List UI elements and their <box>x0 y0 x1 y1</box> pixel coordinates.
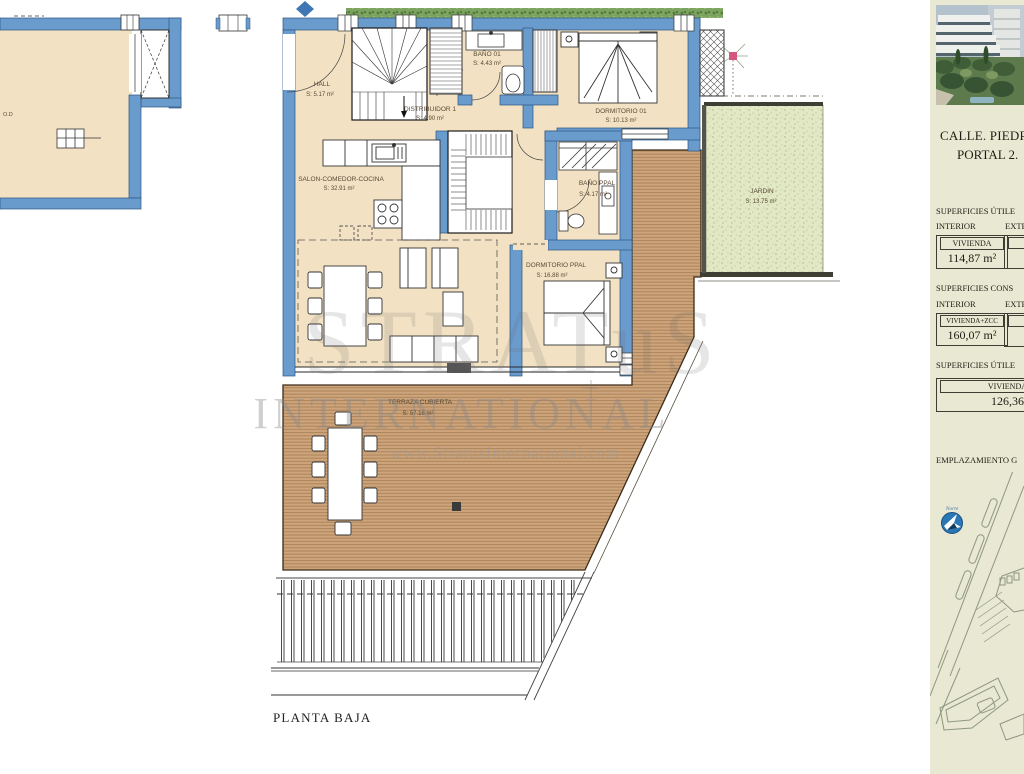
lower-stair <box>448 131 512 233</box>
railing <box>271 572 594 700</box>
jardin-area: S: 13.75 m² <box>745 199 776 205</box>
table2-label: VIVIENDA+ZCC <box>940 315 1004 327</box>
dormppal-label: DORMITORIO PPAL <box>526 262 586 269</box>
table2-exterior-fragment <box>1004 313 1024 347</box>
north-compass-icon: Norte <box>942 506 963 534</box>
distribuidor-area: S: 4.90 m² <box>416 116 444 122</box>
address-line1: CALLE. PIEDR <box>940 128 1024 144</box>
table1-exterior-fragment <box>1004 235 1024 269</box>
adjacent-unit-label: O.D <box>3 112 13 118</box>
floorplan-drawing: O.D <box>0 0 930 774</box>
superficies-utiles-table: VIVIENDA 114,87 m² <box>936 235 1008 269</box>
drain-icon <box>452 502 461 511</box>
col-exterior: EXTE <box>1005 221 1024 231</box>
dormppal-area: S: 16.88 m² <box>536 273 567 279</box>
watermark: STRATuS INTERNATIONAL www.StratusInterna… <box>254 291 721 462</box>
section3-title: SUPERFICIES ÚTILE <box>936 360 1015 370</box>
wardrobe <box>533 30 557 92</box>
col-exterior: EXTE <box>1005 299 1024 309</box>
building-photo <box>936 5 1024 105</box>
address-line2: PORTAL 2. <box>957 147 1018 163</box>
table1-label: VIVIENDA <box>940 237 1004 250</box>
bano01-label: BAÑO 01 <box>473 49 501 58</box>
table1-value: 114,87 m² <box>937 250 1007 268</box>
section1-columns: INTERIOR EXTE <box>936 221 1024 231</box>
hall-area: S: 5.17 m² <box>306 92 334 98</box>
floorplan-page: O.D <box>0 0 1024 774</box>
jardin-label: JARDIN <box>750 188 774 195</box>
watermark-brand: STRATuS <box>303 291 720 393</box>
section2-title: SUPERFICIES CONS <box>936 283 1013 293</box>
section2-columns: INTERIOR EXTE <box>936 299 1024 309</box>
watermark-line: INTERNATIONAL <box>254 389 671 438</box>
installation-shaft <box>700 30 724 96</box>
adjacent-unit: O.D <box>0 15 250 209</box>
distribuidor-label: DISTRIBUIDOR 1 <box>404 106 456 113</box>
banoppal-area: S: 4.17 m² <box>579 192 607 198</box>
salon-area: S: 32.91 m² <box>323 186 354 192</box>
entrance-arrow-icon <box>296 1 314 17</box>
bano01-area: S: 4.43 m² <box>473 61 501 67</box>
table3-value: 126,36 <box>937 393 1024 411</box>
window-icon <box>219 15 247 31</box>
col-interior: INTERIOR <box>936 299 976 309</box>
compass-label: Norte <box>945 506 959 512</box>
hall-closet <box>430 28 462 94</box>
superficies-construidas-table: VIVIENDA+ZCC 160,07 m² <box>936 313 1008 346</box>
superficies-totales-table: VIVIENDA 126,36 <box>936 378 1024 412</box>
col-interior: INTERIOR <box>936 221 976 231</box>
plan-title: PLANTA BAJA <box>273 710 371 725</box>
hall-label: HALL <box>314 81 331 88</box>
section1-title: SUPERFICIES ÚTILE <box>936 206 1015 216</box>
dormitorio01-label: DORMITORIO 01 <box>595 108 647 115</box>
banoppal-label: BAÑO PPAL <box>579 178 616 187</box>
map-title: EMPLAZAMIENTO G <box>936 455 1017 465</box>
salon-label: SALON-COMEDOR-COCINA <box>298 176 384 183</box>
dormitorio01-area: S: 10.13 m² <box>605 118 636 124</box>
table2-value: 160,07 m² <box>937 327 1007 345</box>
table3-label: VIVIENDA <box>940 380 1024 393</box>
watermark-url: www.StratusInternational.com <box>390 443 619 462</box>
window-icon <box>121 15 139 30</box>
location-map: Norte <box>930 472 1024 774</box>
info-panel: CALLE. PIEDR PORTAL 2. SUPERFICIES ÚTILE… <box>930 0 1024 774</box>
